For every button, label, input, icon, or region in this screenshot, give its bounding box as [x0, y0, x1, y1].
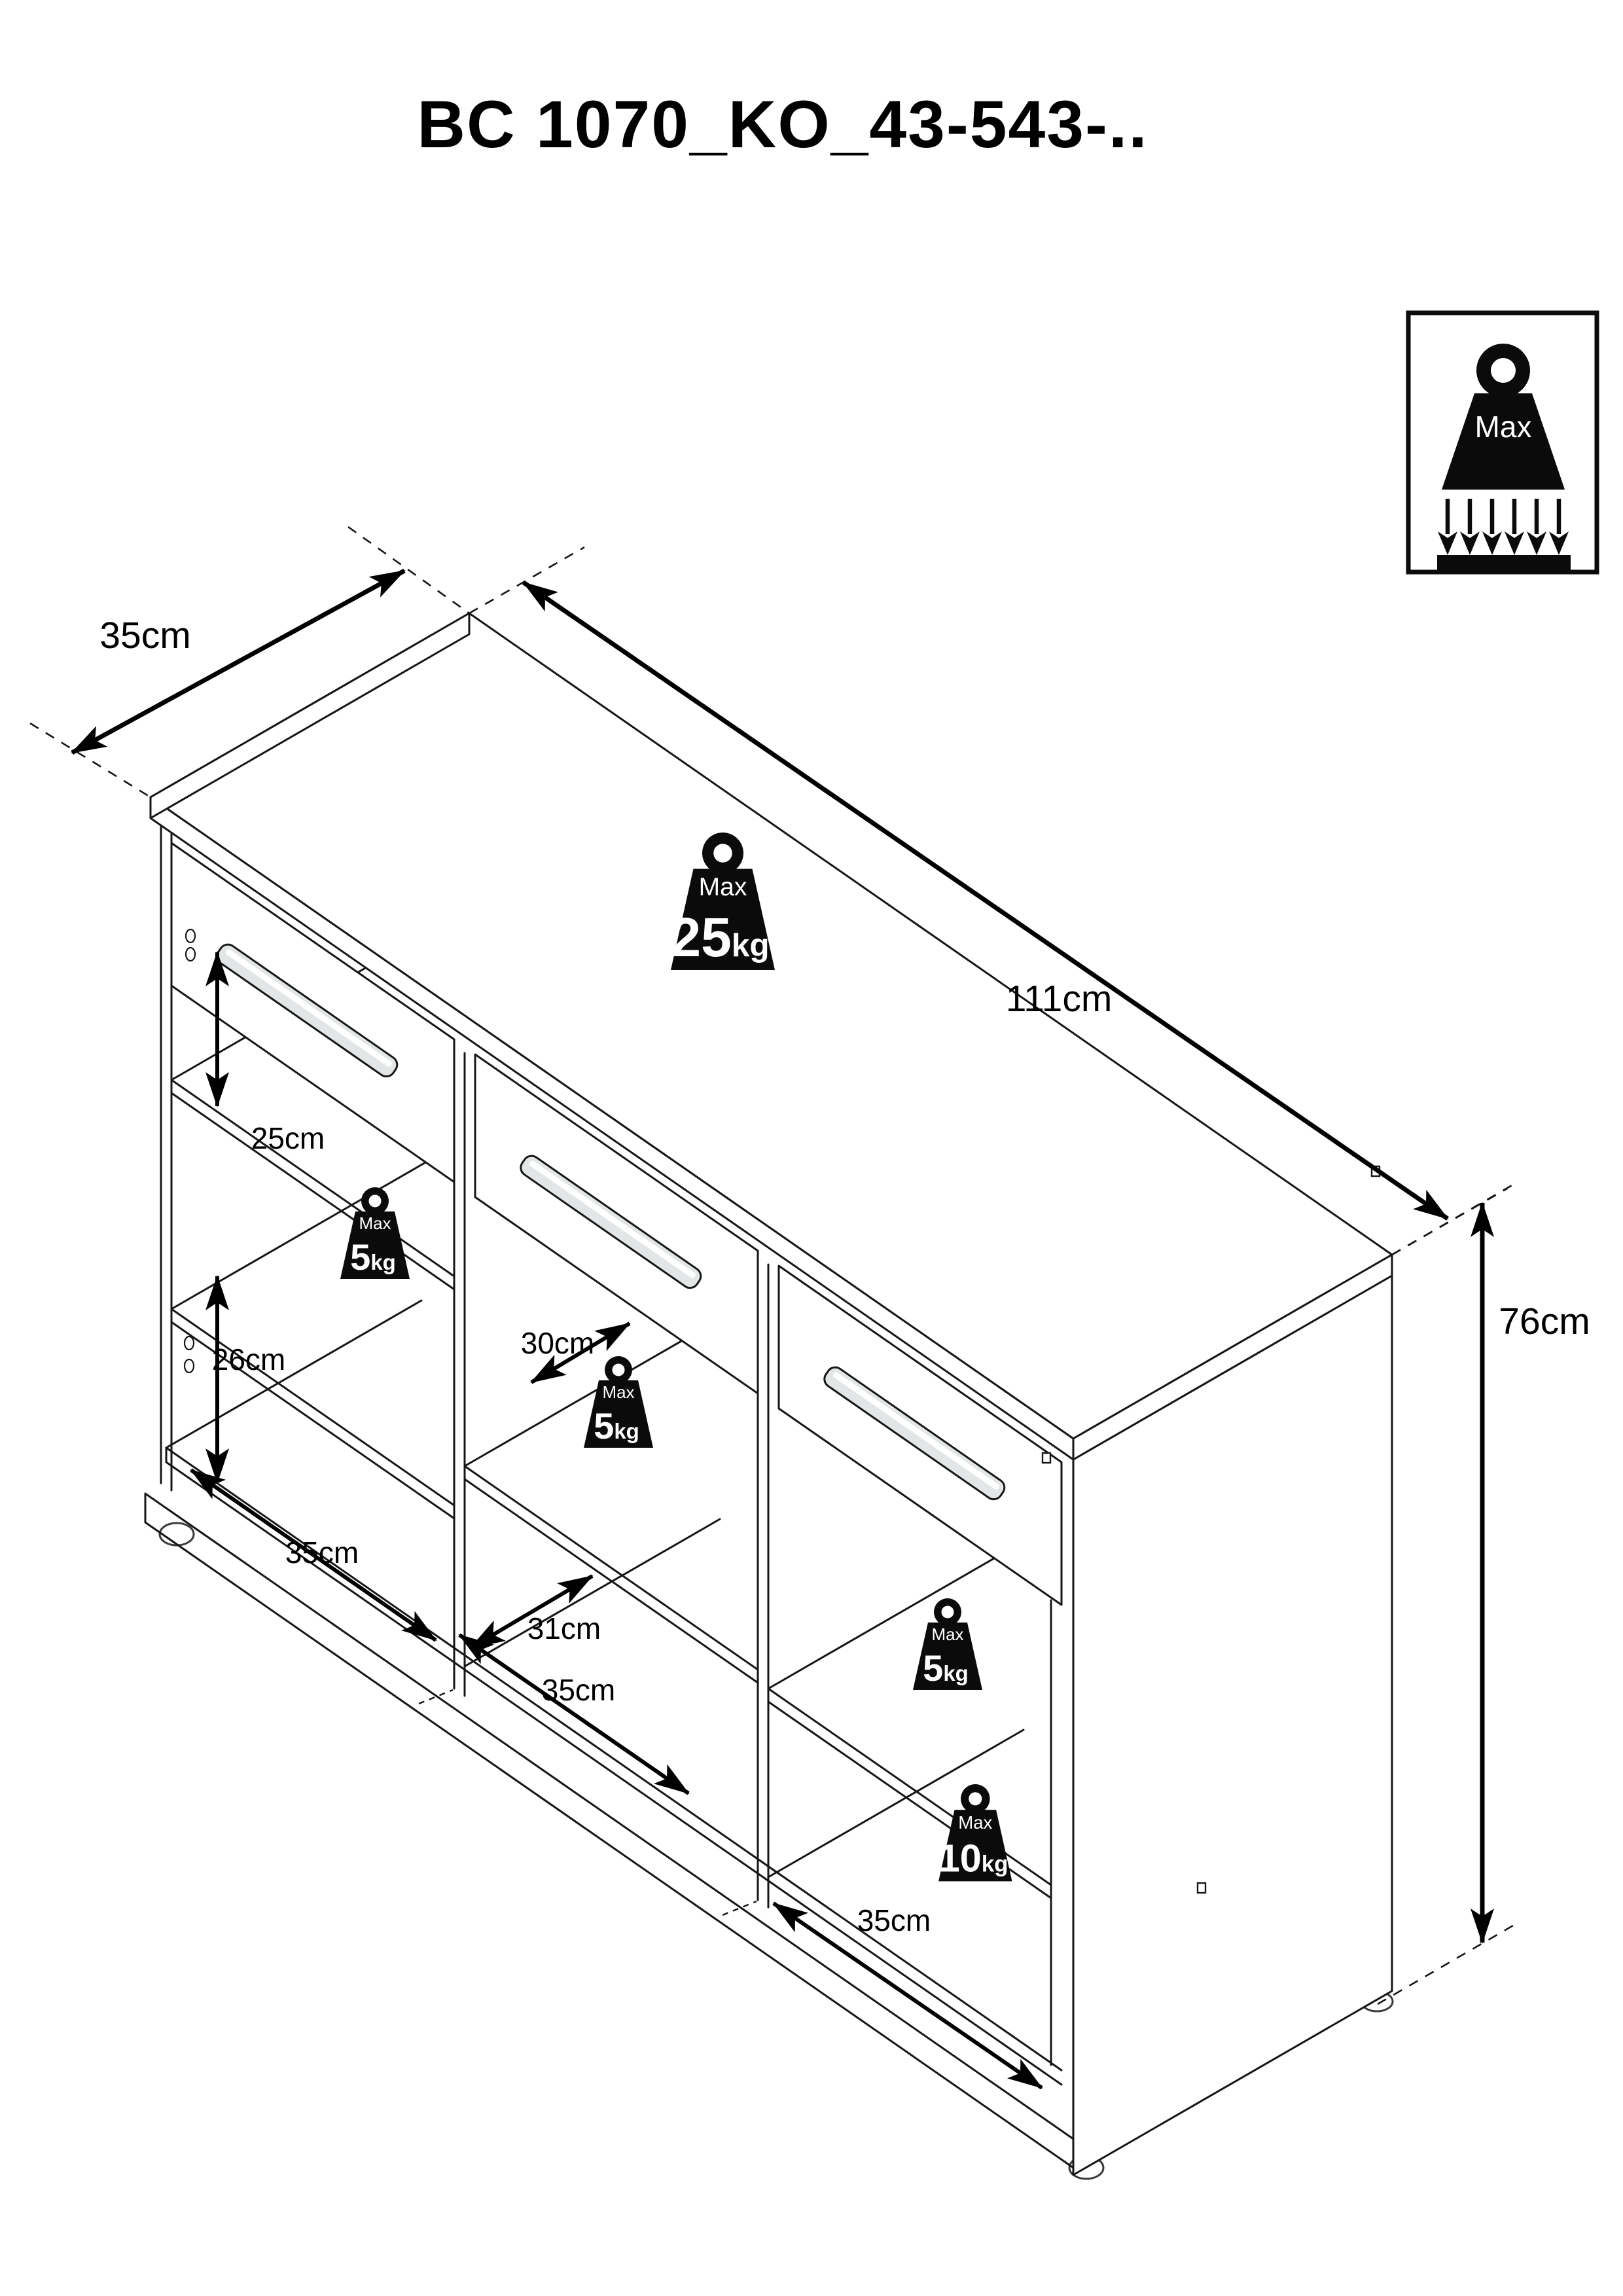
weight-max-label: Max — [359, 1213, 391, 1233]
weight-max-label: Max — [931, 1624, 963, 1644]
dim-label-left-gap-lower: 26cm — [212, 1342, 285, 1376]
shelf-left-lower — [171, 1162, 454, 1518]
weight-icon-left-shelf: Max 5kg — [340, 1187, 410, 1279]
divider-left — [454, 1046, 465, 1696]
shelf-right — [768, 1541, 1051, 1898]
dim-label-right-compartment-width: 35cm — [857, 1903, 931, 1937]
assembly-diagram-page: BC 1070_KO_43-543-.. Max — [0, 0, 1623, 2296]
badge-floor-bar — [1437, 555, 1571, 571]
weight-icon-right-bottom: Max 10kg — [938, 1784, 1012, 1881]
dim-label-middle-shelf-depth: 30cm — [521, 1326, 594, 1360]
weight-icon-right-shelf: Max 5kg — [913, 1598, 982, 1690]
dim-label-height: 76cm — [1499, 1300, 1590, 1342]
bottom-left-depth-edge — [166, 1300, 421, 1448]
dim-label-left-gap-upper: 25cm — [251, 1121, 325, 1155]
cabinet-drawing — [145, 613, 1393, 2179]
dim-label-top-width: 111cm — [1006, 978, 1113, 1020]
page-title: BC 1070_KO_43-543-.. — [417, 87, 1148, 162]
divider-right — [758, 1257, 768, 1907]
dimension-middle-bottom-depth: 31cm — [471, 1576, 601, 1648]
dim-label-middle-bottom-depth: 31cm — [527, 1611, 601, 1645]
weight-max-label: Max — [699, 873, 747, 901]
weight-max-label: Max — [602, 1382, 634, 1402]
weight-icon-middle-shelf: Max 5kg — [584, 1356, 653, 1448]
dimension-middle-compartment-width: 35cm — [459, 1635, 688, 1793]
left-side-edge — [161, 826, 171, 1490]
max-load-badge: Max — [1408, 313, 1597, 572]
dim-label-left-compartment-width: 35cm — [285, 1535, 359, 1570]
dimension-left-compartment-width: 35cm — [191, 1470, 436, 1640]
badge-max-label: Max — [1475, 410, 1532, 444]
dimension-height: 76cm — [1378, 1185, 1590, 2004]
weight-max-label: Max — [958, 1812, 992, 1833]
dimension-right-compartment-width: 35cm — [774, 1903, 1042, 2088]
dim-label-middle-compartment-width: 35cm — [542, 1673, 615, 1707]
plinth — [145, 1494, 1073, 2168]
dim-label-top-depth: 35cm — [99, 615, 190, 656]
